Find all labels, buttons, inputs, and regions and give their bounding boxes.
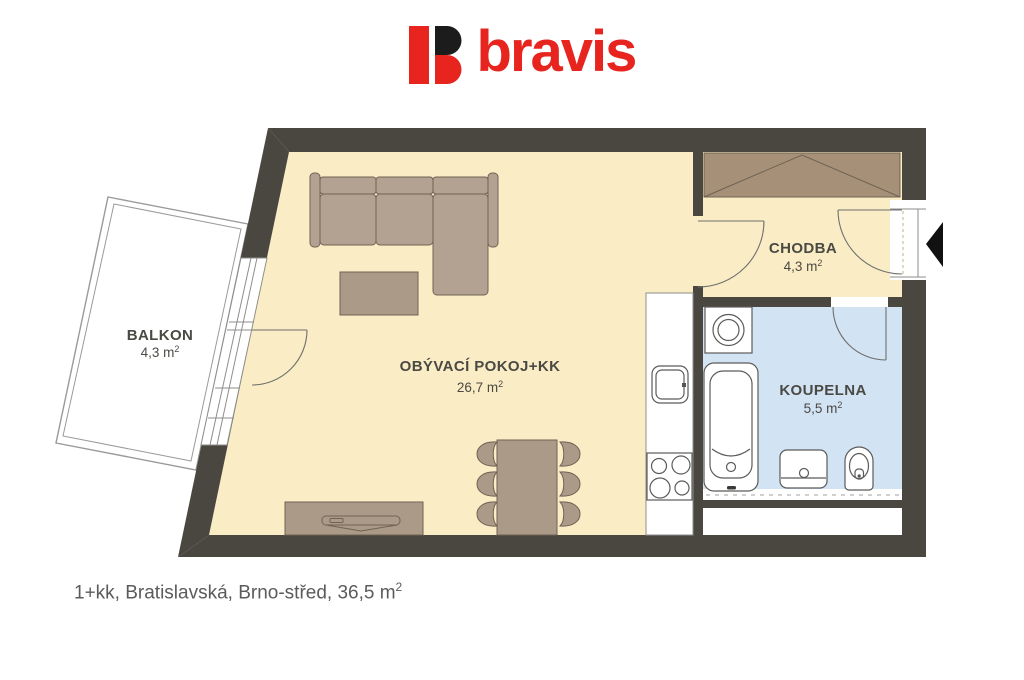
caption-superscript: 2 xyxy=(396,580,403,594)
room-label-balkon: BALKON xyxy=(127,327,194,344)
washing-machine xyxy=(705,307,752,353)
room-area-chodba: 4,3 m2 xyxy=(784,258,823,274)
entrance-arrow-icon xyxy=(926,222,943,267)
room-label-chodba: CHODBA xyxy=(769,240,837,257)
room-label-living: OBÝVACÍ POKOJ+KK xyxy=(400,357,561,375)
wardrobe xyxy=(704,153,900,197)
toilet xyxy=(845,447,873,490)
floor-plan: BALKON 4,3 m2 OBÝVACÍ POKOJ+KK 26,7 m2 C… xyxy=(0,0,1024,680)
kitchen-counter xyxy=(646,293,693,535)
floorplan-page: bravis xyxy=(0,0,1024,680)
bathtub xyxy=(704,363,758,491)
room-area-koupelna: 5,5 m2 xyxy=(804,400,843,416)
stove xyxy=(647,453,692,500)
room-area-balkon: 4,3 m2 xyxy=(141,344,180,360)
bathroom-sink xyxy=(780,450,827,488)
dining-set xyxy=(477,440,580,535)
room-label-koupelna: KOUPELNA xyxy=(779,382,866,399)
service-niche xyxy=(703,508,902,535)
dining-table xyxy=(497,440,557,535)
listing-caption: 1+kk, Bratislavská, Brno-střed, 36,5 m2 xyxy=(74,580,402,604)
tv-stand xyxy=(285,502,423,535)
room-area-living: 26,7 m2 xyxy=(457,379,503,395)
door-gap-floor xyxy=(693,216,703,286)
caption-text: 1+kk, Bratislavská, Brno-střed, 36,5 m xyxy=(74,582,396,603)
coffee-table xyxy=(340,272,418,315)
kitchen-sink xyxy=(652,366,688,403)
